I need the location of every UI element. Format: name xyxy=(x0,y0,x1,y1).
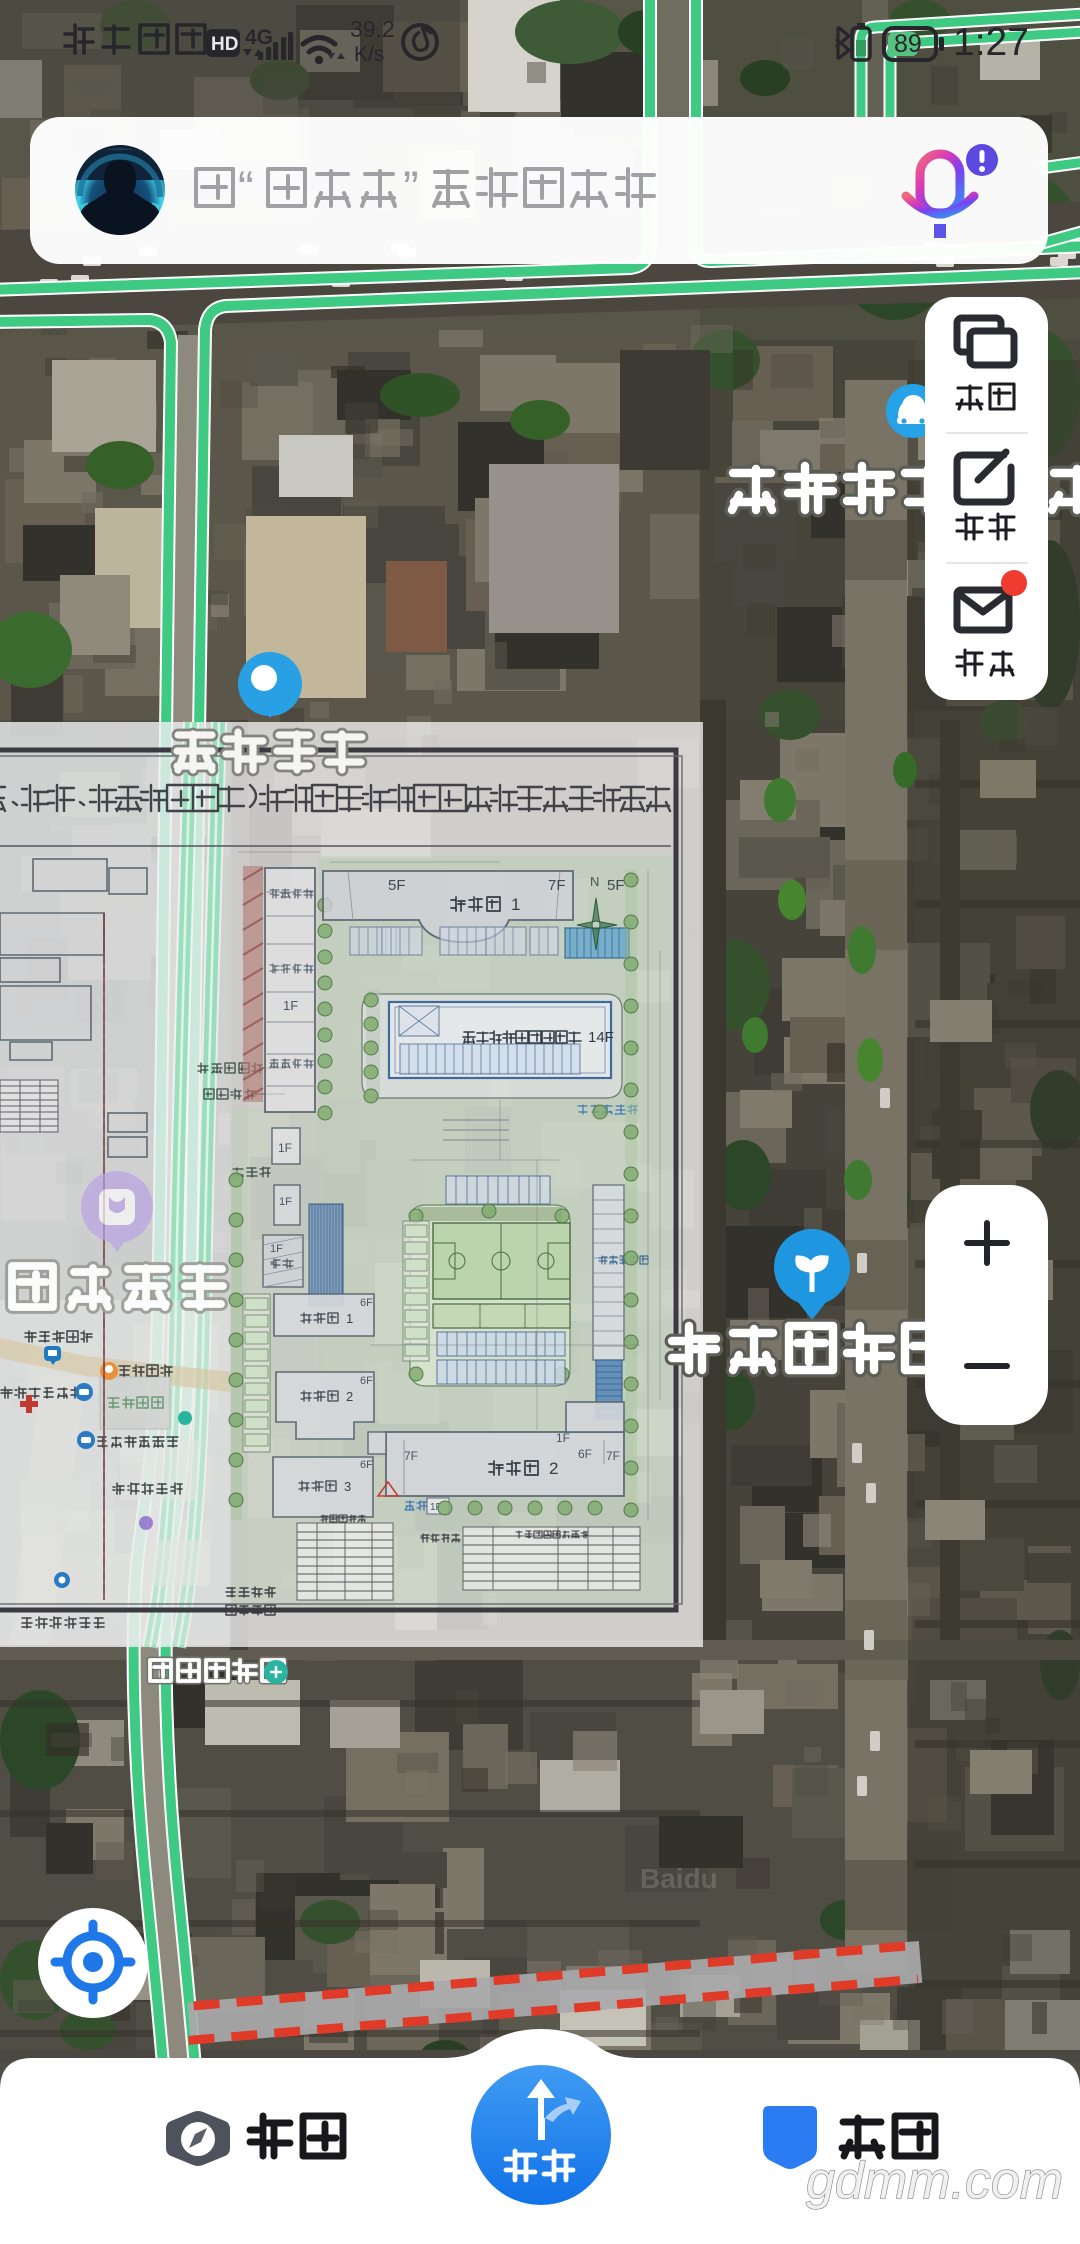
svg-text:2: 2 xyxy=(549,1459,558,1478)
svg-text:1: 1 xyxy=(511,895,520,914)
svg-text:1F: 1F xyxy=(278,1141,292,1155)
svg-text:6F: 6F xyxy=(578,1447,592,1461)
svg-text:89: 89 xyxy=(894,30,922,58)
svg-text:1F: 1F xyxy=(279,1196,292,1208)
svg-text:Baidu: Baidu xyxy=(640,1863,718,1894)
svg-text:7F: 7F xyxy=(404,1449,418,1463)
svg-text:5F: 5F xyxy=(388,877,406,894)
svg-text:2: 2 xyxy=(346,1389,353,1404)
svg-text:1F: 1F xyxy=(270,1243,283,1255)
svg-text:7F: 7F xyxy=(548,877,566,894)
svg-text:1: 1 xyxy=(346,1311,353,1326)
svg-text:5F: 5F xyxy=(607,877,625,894)
svg-text:“: “ xyxy=(238,161,254,214)
svg-text:K/s: K/s xyxy=(354,43,384,66)
svg-text:6F: 6F xyxy=(360,1297,373,1309)
svg-text:6F: 6F xyxy=(360,1375,373,1387)
svg-text:1:27: 1:27 xyxy=(953,21,1029,64)
svg-text:6F: 6F xyxy=(360,1459,373,1471)
svg-text:14F: 14F xyxy=(588,1029,614,1046)
svg-text:39.2: 39.2 xyxy=(350,16,395,42)
svg-text:7F: 7F xyxy=(606,1449,620,1463)
svg-text:gdmm.com: gdmm.com xyxy=(806,2152,1063,2210)
svg-text:”: ” xyxy=(403,161,419,214)
svg-text:1F: 1F xyxy=(283,998,298,1013)
svg-text:HD: HD xyxy=(211,34,238,55)
svg-text:3: 3 xyxy=(344,1479,351,1494)
svg-text:N: N xyxy=(590,874,599,889)
svg-text:4G: 4G xyxy=(245,26,273,49)
svg-text:1F: 1F xyxy=(556,1431,570,1445)
